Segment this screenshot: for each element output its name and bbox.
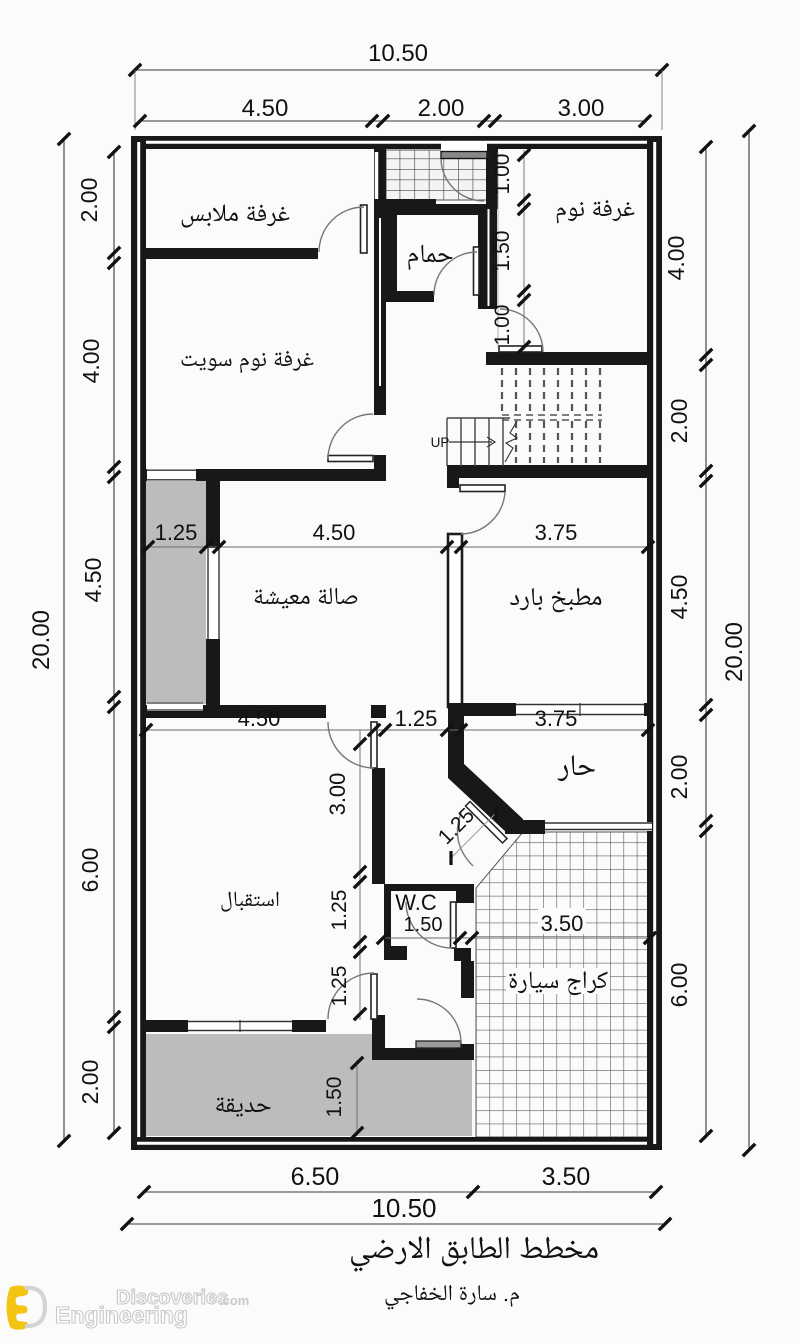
svg-text:10.50: 10.50 xyxy=(371,1193,436,1223)
svg-text:3.50: 3.50 xyxy=(542,1163,591,1191)
svg-text:2.00: 2.00 xyxy=(666,399,692,444)
svg-text:4.50: 4.50 xyxy=(242,95,289,122)
svg-text:Engineering: Engineering xyxy=(55,1302,188,1328)
svg-text:1.50: 1.50 xyxy=(323,1077,346,1118)
svg-text:UP: UP xyxy=(431,435,450,450)
svg-text:3.75: 3.75 xyxy=(535,706,578,731)
svg-text:1.25: 1.25 xyxy=(328,890,351,931)
svg-text:2.00: 2.00 xyxy=(77,1060,103,1105)
svg-text:20.00: 20.00 xyxy=(721,622,748,682)
svg-text:4.00: 4.00 xyxy=(663,236,689,281)
svg-text:4.50: 4.50 xyxy=(80,558,106,603)
svg-text:4.50: 4.50 xyxy=(238,706,281,731)
svg-text:6.00: 6.00 xyxy=(77,848,103,893)
svg-text:3.75: 3.75 xyxy=(535,520,578,545)
svg-text:3.00: 3.00 xyxy=(325,773,350,816)
svg-text:10.50: 10.50 xyxy=(368,40,428,67)
svg-text:4.50: 4.50 xyxy=(666,575,692,620)
svg-text:1.25: 1.25 xyxy=(328,966,351,1007)
svg-text:4.00: 4.00 xyxy=(78,339,104,384)
svg-text:1.50: 1.50 xyxy=(491,231,514,272)
svg-text:3.50: 3.50 xyxy=(541,911,584,936)
svg-text:1.25: 1.25 xyxy=(395,706,438,731)
svg-text:4.50: 4.50 xyxy=(313,520,356,545)
svg-text:2.00: 2.00 xyxy=(666,755,692,800)
svg-text:20.00: 20.00 xyxy=(28,610,55,670)
svg-text:6.50: 6.50 xyxy=(291,1163,340,1191)
svg-text:W.C: W.C xyxy=(395,890,437,915)
svg-text:3.00: 3.00 xyxy=(558,95,605,122)
svg-text:1.00: 1.00 xyxy=(491,305,514,346)
svg-text:1.00: 1.00 xyxy=(491,154,514,195)
svg-text:1.25: 1.25 xyxy=(155,520,198,545)
svg-text:2.00: 2.00 xyxy=(76,178,102,223)
svg-text:.com: .com xyxy=(219,1293,249,1308)
svg-text:6.00: 6.00 xyxy=(666,963,692,1008)
svg-text:1.50: 1.50 xyxy=(404,914,443,936)
svg-text:2.00: 2.00 xyxy=(418,95,465,122)
